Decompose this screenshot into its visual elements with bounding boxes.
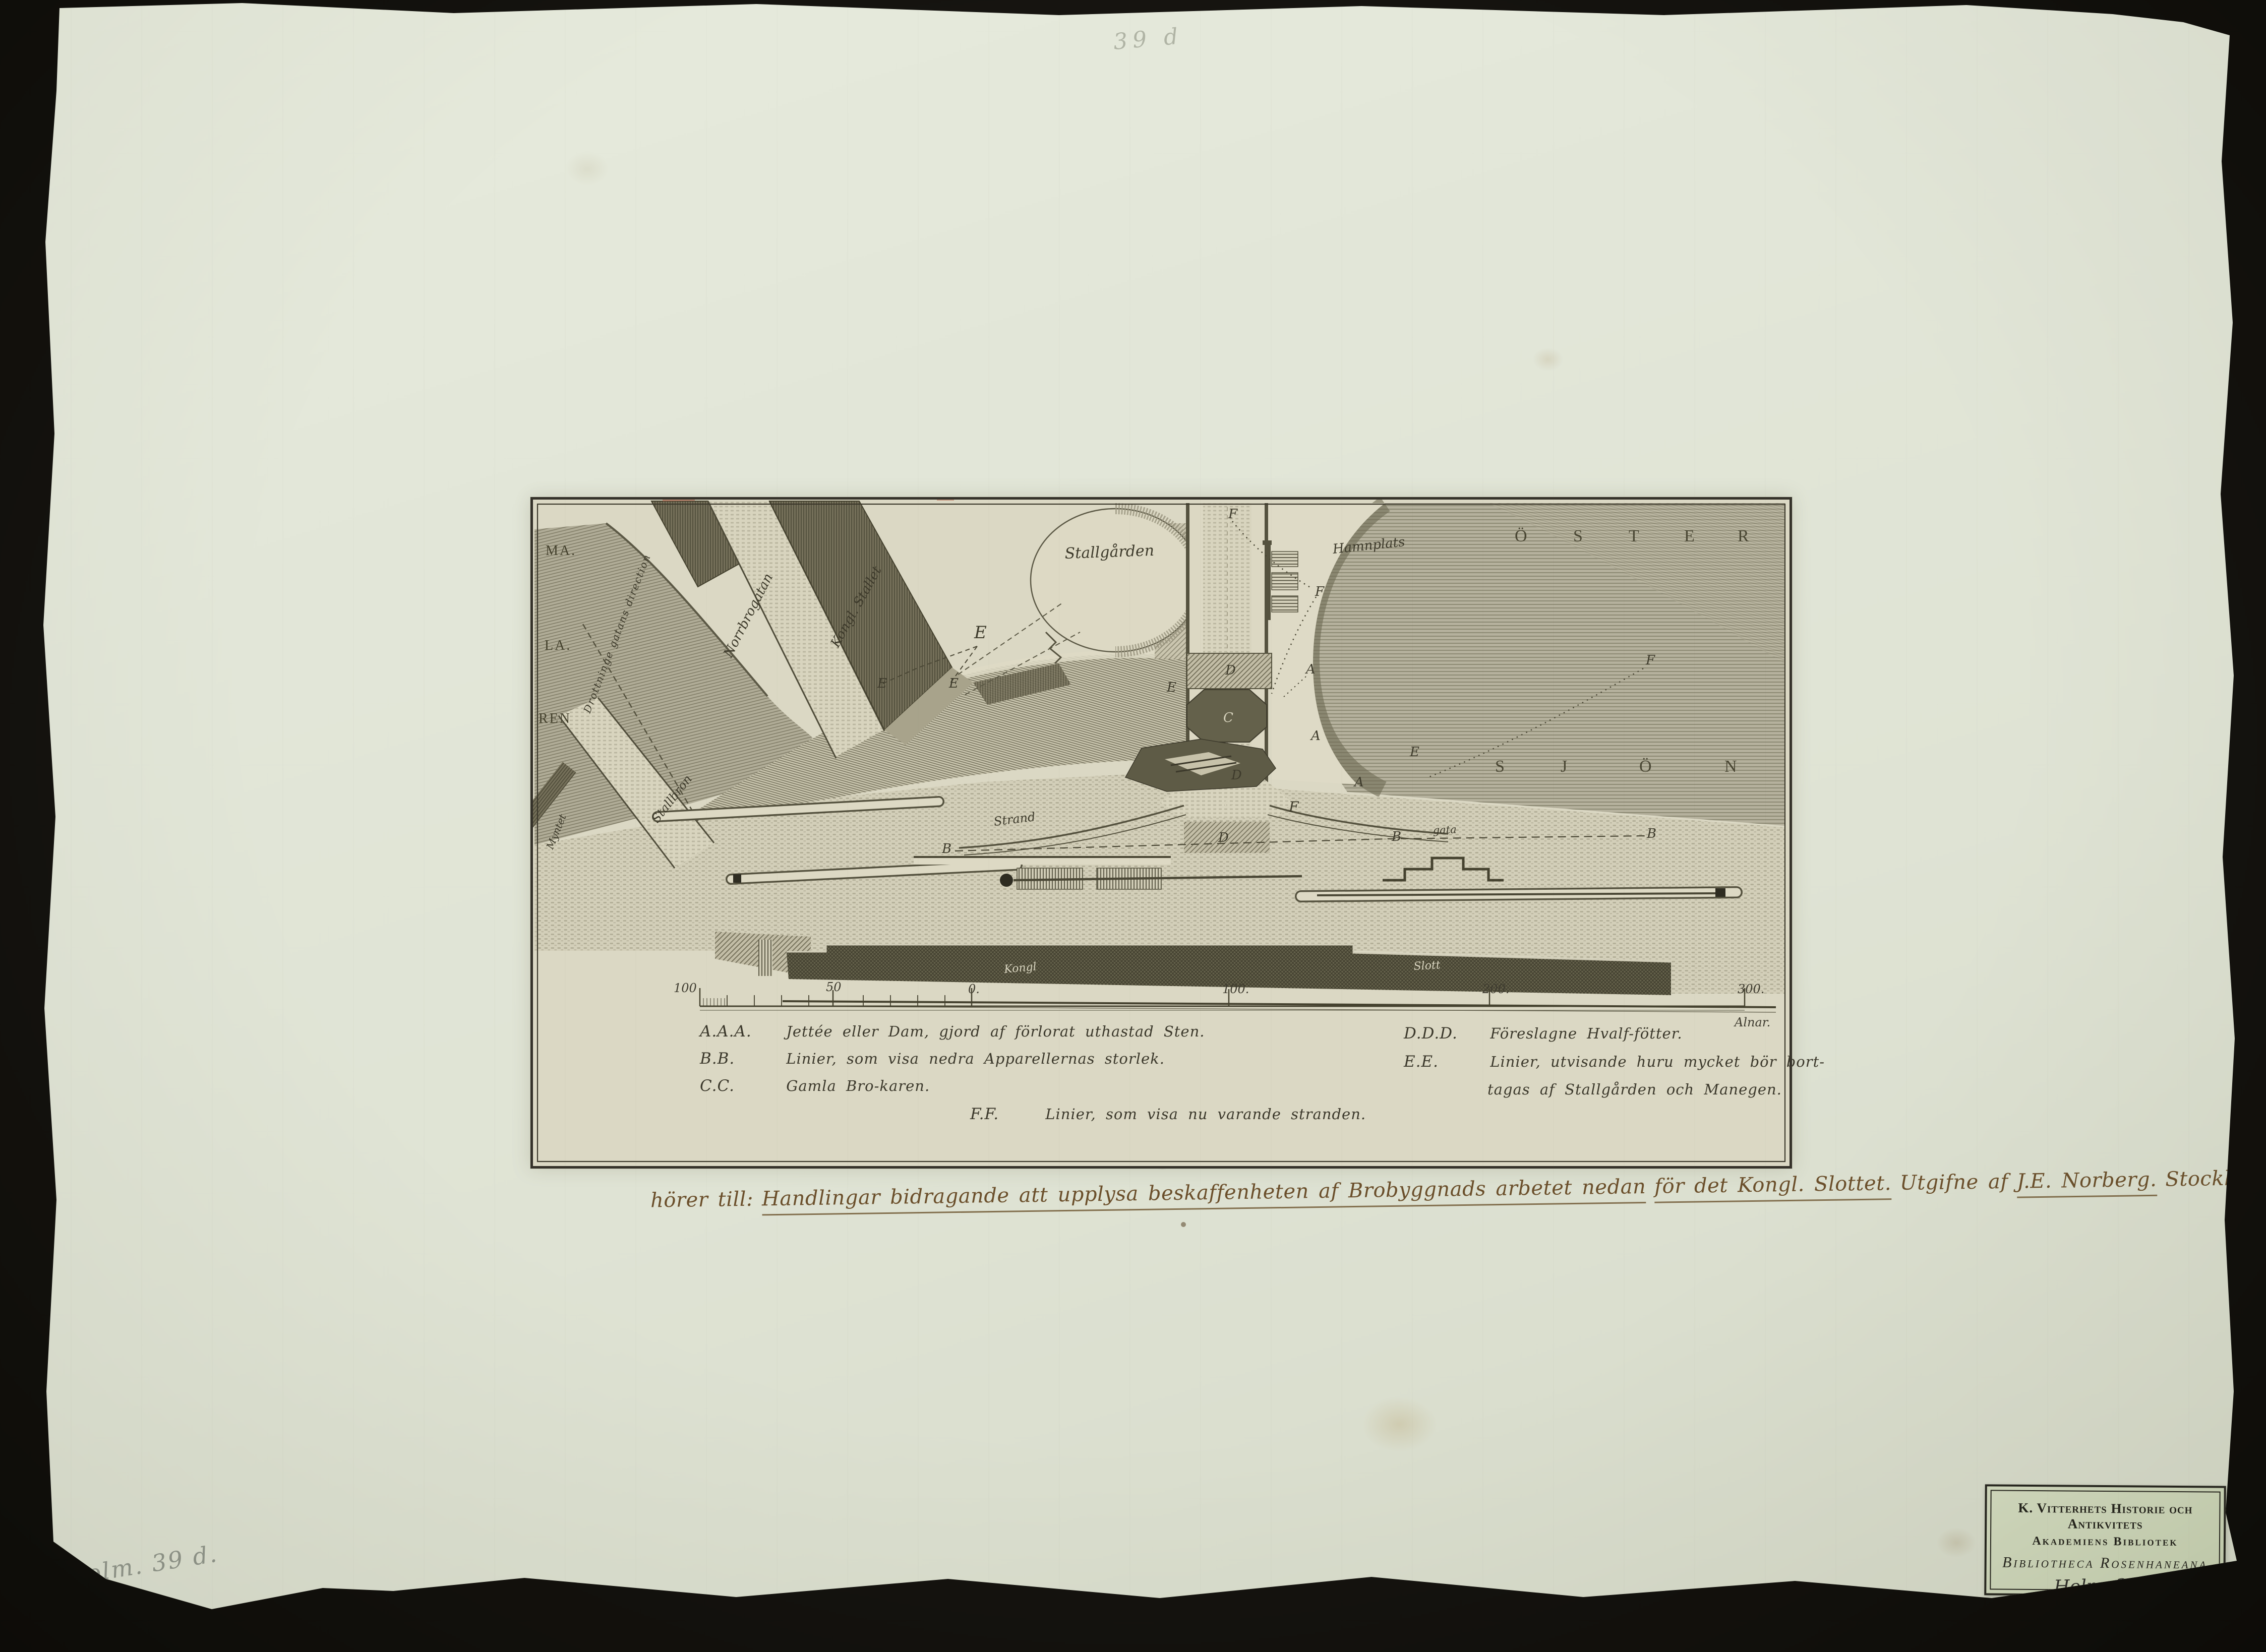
ref-letter-c: C xyxy=(1224,796,1234,811)
legend-row-b: B.B. Linier, som visa nedra Apparellerna… xyxy=(700,1050,1165,1068)
ink-speck xyxy=(1181,1222,1186,1227)
library-shelfmark: Holm. 39 d xyxy=(2049,1575,2161,1600)
ref-letter-b: B xyxy=(1391,829,1401,844)
library-label-line2: Akademiens Bibliotek xyxy=(1991,1534,2219,1549)
label-gata: gata xyxy=(1433,823,1457,836)
legend-key-ff: F.F. xyxy=(970,1105,1036,1123)
scanned-sheet-stage: 100 50 0. 100. 200. 300. Alnar. Stallgår… xyxy=(0,0,2266,1652)
scale-unit-label: Alnar. xyxy=(1734,1015,1770,1029)
sea-name-letter: S xyxy=(1495,757,1505,776)
caption-segment: J.E. Norberg. xyxy=(2016,1168,2157,1198)
legend-text-ff: Linier, som visa nu varande stranden. xyxy=(1045,1106,1366,1123)
scale-label: 100 xyxy=(674,981,697,995)
ref-letter-b: B xyxy=(1646,826,1656,841)
ref-letter-e: E xyxy=(974,623,987,643)
legend-row-a: A.A.A. Jettée eller Dam, gjord af förlor… xyxy=(700,1022,1205,1041)
ref-letter-f: F xyxy=(1645,653,1655,668)
ref-letter-e: E xyxy=(877,676,887,691)
sea-name-letter: N xyxy=(1724,757,1737,776)
legend-text-aaa: Jettée eller Dam, gjord af förlorat utha… xyxy=(786,1023,1205,1040)
legend-key-ee: E.E. xyxy=(1404,1053,1480,1071)
sea-name-letter: MA. xyxy=(546,543,576,559)
legend-key-cc: C.C. xyxy=(700,1077,777,1095)
library-label-line3: Bibliotheca Rosenhaneana xyxy=(1991,1554,2219,1572)
paper-sheet: 100 50 0. 100. 200. 300. Alnar. Stallgår… xyxy=(0,0,2266,1652)
scale-label: 300. xyxy=(1738,982,1764,996)
legend-row-f: F.F. Linier, som visa nu varande strande… xyxy=(970,1105,1366,1123)
legend-text-ee-cont: tagas af Stallgården och Manegen. xyxy=(1487,1081,1782,1098)
legend-text-ee: Linier, utvisande huru mycket bör bort- xyxy=(1490,1053,1825,1070)
legend-row-c: C.C. Gamla Bro-karen. xyxy=(700,1077,930,1095)
ref-letter-f: F xyxy=(1228,507,1238,522)
ref-letter-e: E xyxy=(1409,745,1419,760)
scale-label: 200. xyxy=(1482,982,1509,996)
sea-name-letter: J xyxy=(1561,757,1567,776)
ref-letter-b: B xyxy=(941,841,951,856)
ref-letter-e: E xyxy=(948,676,959,691)
caption-segment: Handlingar bidragande att upplysa beskaf… xyxy=(762,1175,1646,1215)
sea-name-letter: Ö xyxy=(1515,527,1527,545)
foxing-spot xyxy=(565,151,610,187)
legend-text-ddd: Föreslagne Hvalf-fötter. xyxy=(1490,1025,1682,1042)
handwritten-caption: hörer till:Handlingar bidragande att upp… xyxy=(650,1174,1699,1212)
pencil-note-bottom-left: Holm. 39 d. xyxy=(64,1540,220,1590)
legend-key-aaa: A.A.A. xyxy=(700,1022,777,1041)
ref-letter-f: F xyxy=(1315,584,1325,599)
ref-letter-c: C xyxy=(1223,710,1233,725)
engraved-plate: 100 50 0. 100. 200. 300. Alnar. Stallgår… xyxy=(530,497,1792,1169)
foxing-spot xyxy=(1533,348,1563,371)
caption-segment: för det Kongl. Slottet. xyxy=(1654,1172,1891,1203)
caption-segment: Stockh. 1799. xyxy=(2165,1166,2266,1191)
ref-letter-d: D xyxy=(1225,663,1236,678)
legend-row-e: E.E. Linier, utvisande huru mycket bör b… xyxy=(1404,1053,1825,1071)
label-slott: Slott xyxy=(1413,959,1441,973)
foxing-spot xyxy=(1361,1396,1437,1452)
sea-name-letter: LA. xyxy=(545,638,571,653)
sea-name-letter: Ö xyxy=(1639,757,1652,776)
legend-text-bb: Linier, som visa nedra Apparellernas sto… xyxy=(786,1050,1165,1067)
sea-name-letter: REN xyxy=(539,711,571,726)
foxing-spot xyxy=(1936,1527,1977,1558)
ref-letter-a: A xyxy=(1353,775,1364,790)
caption-segment: hörer till: xyxy=(650,1188,754,1212)
library-label-frame: K. Vitterhets Historie och Antikvitets A… xyxy=(1990,1490,2220,1591)
legend-key-bb: B.B. xyxy=(700,1050,777,1068)
ref-letter-e: E xyxy=(1166,680,1176,695)
scale-label: 100. xyxy=(1222,982,1249,996)
caption-segment: Utgifne af xyxy=(1900,1170,2008,1195)
pencil-note-top: 39 d xyxy=(1112,23,1184,55)
sea-name-letter: R xyxy=(1738,527,1749,545)
ref-letter-d: D xyxy=(1218,830,1229,845)
library-label-line1: K. Vitterhets Historie och Antikvitets xyxy=(1991,1500,2219,1533)
legend-text-cc: Gamla Bro-karen. xyxy=(786,1077,930,1094)
legend-row-d: D.D.D. Föreslagne Hvalf-fötter. xyxy=(1404,1024,1683,1043)
ref-letter-f: F xyxy=(1288,799,1299,815)
library-label: K. Vitterhets Historie och Antikvitets A… xyxy=(1984,1484,2226,1597)
legend-key-ddd: D.D.D. xyxy=(1404,1024,1480,1043)
ref-letter-d: D xyxy=(1231,768,1242,783)
label-stallgarden: Stallgården xyxy=(1064,542,1155,563)
ref-letter-a: A xyxy=(1310,728,1321,744)
sea-name-letter: T xyxy=(1629,527,1639,545)
ref-letter-a: A xyxy=(1305,662,1316,677)
scale-label: 0. xyxy=(968,982,980,996)
sea-name-letter: S xyxy=(1573,527,1583,545)
scale-label: 50 xyxy=(826,980,842,994)
sea-name-letter: E xyxy=(1684,527,1695,545)
legend-row-e2: tagas af Stallgården och Manegen. xyxy=(1487,1081,1782,1098)
